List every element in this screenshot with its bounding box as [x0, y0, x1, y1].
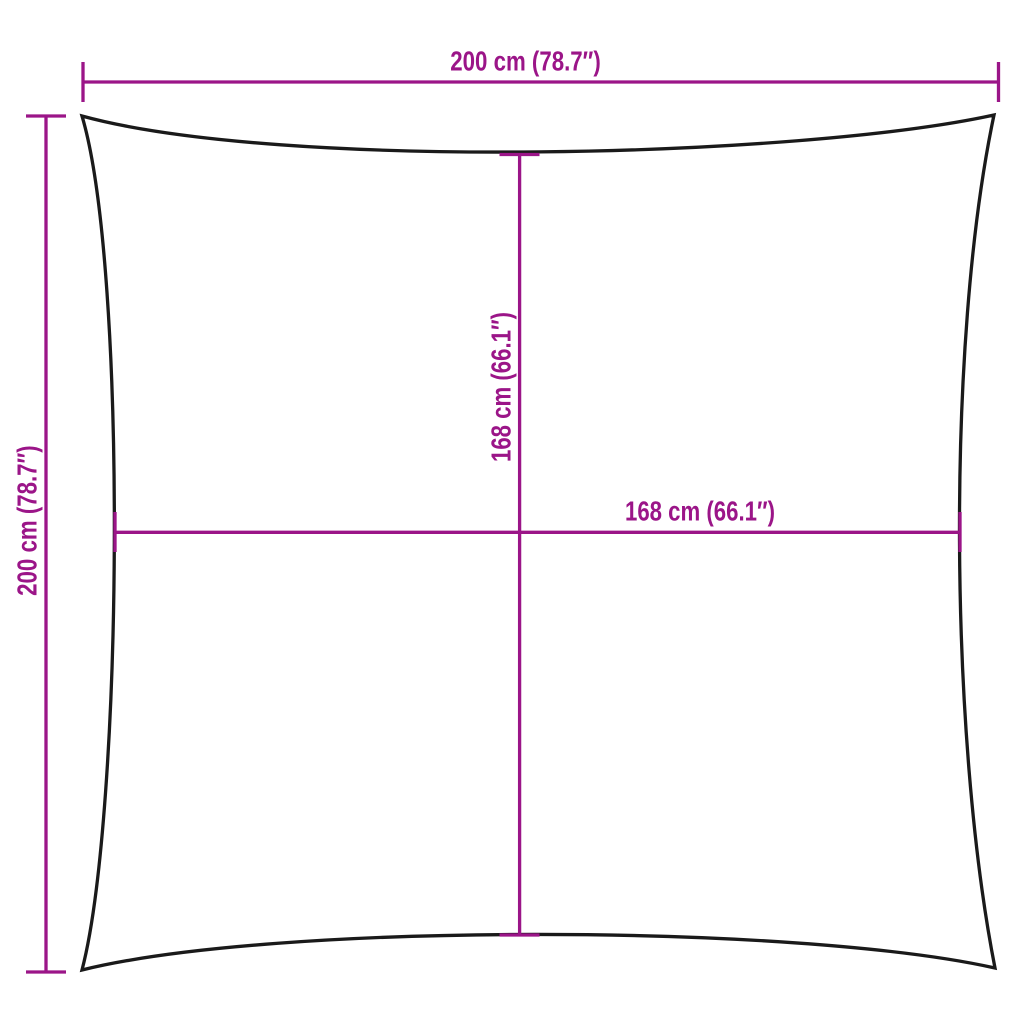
svg-text:200 cm (78.7″): 200 cm (78.7″)	[450, 46, 601, 77]
svg-text:168 cm (66.1″): 168 cm (66.1″)	[486, 312, 517, 462]
svg-text:168 cm (66.1″): 168 cm (66.1″)	[625, 495, 775, 526]
svg-text:200 cm (78.7″): 200 cm (78.7″)	[12, 445, 43, 596]
